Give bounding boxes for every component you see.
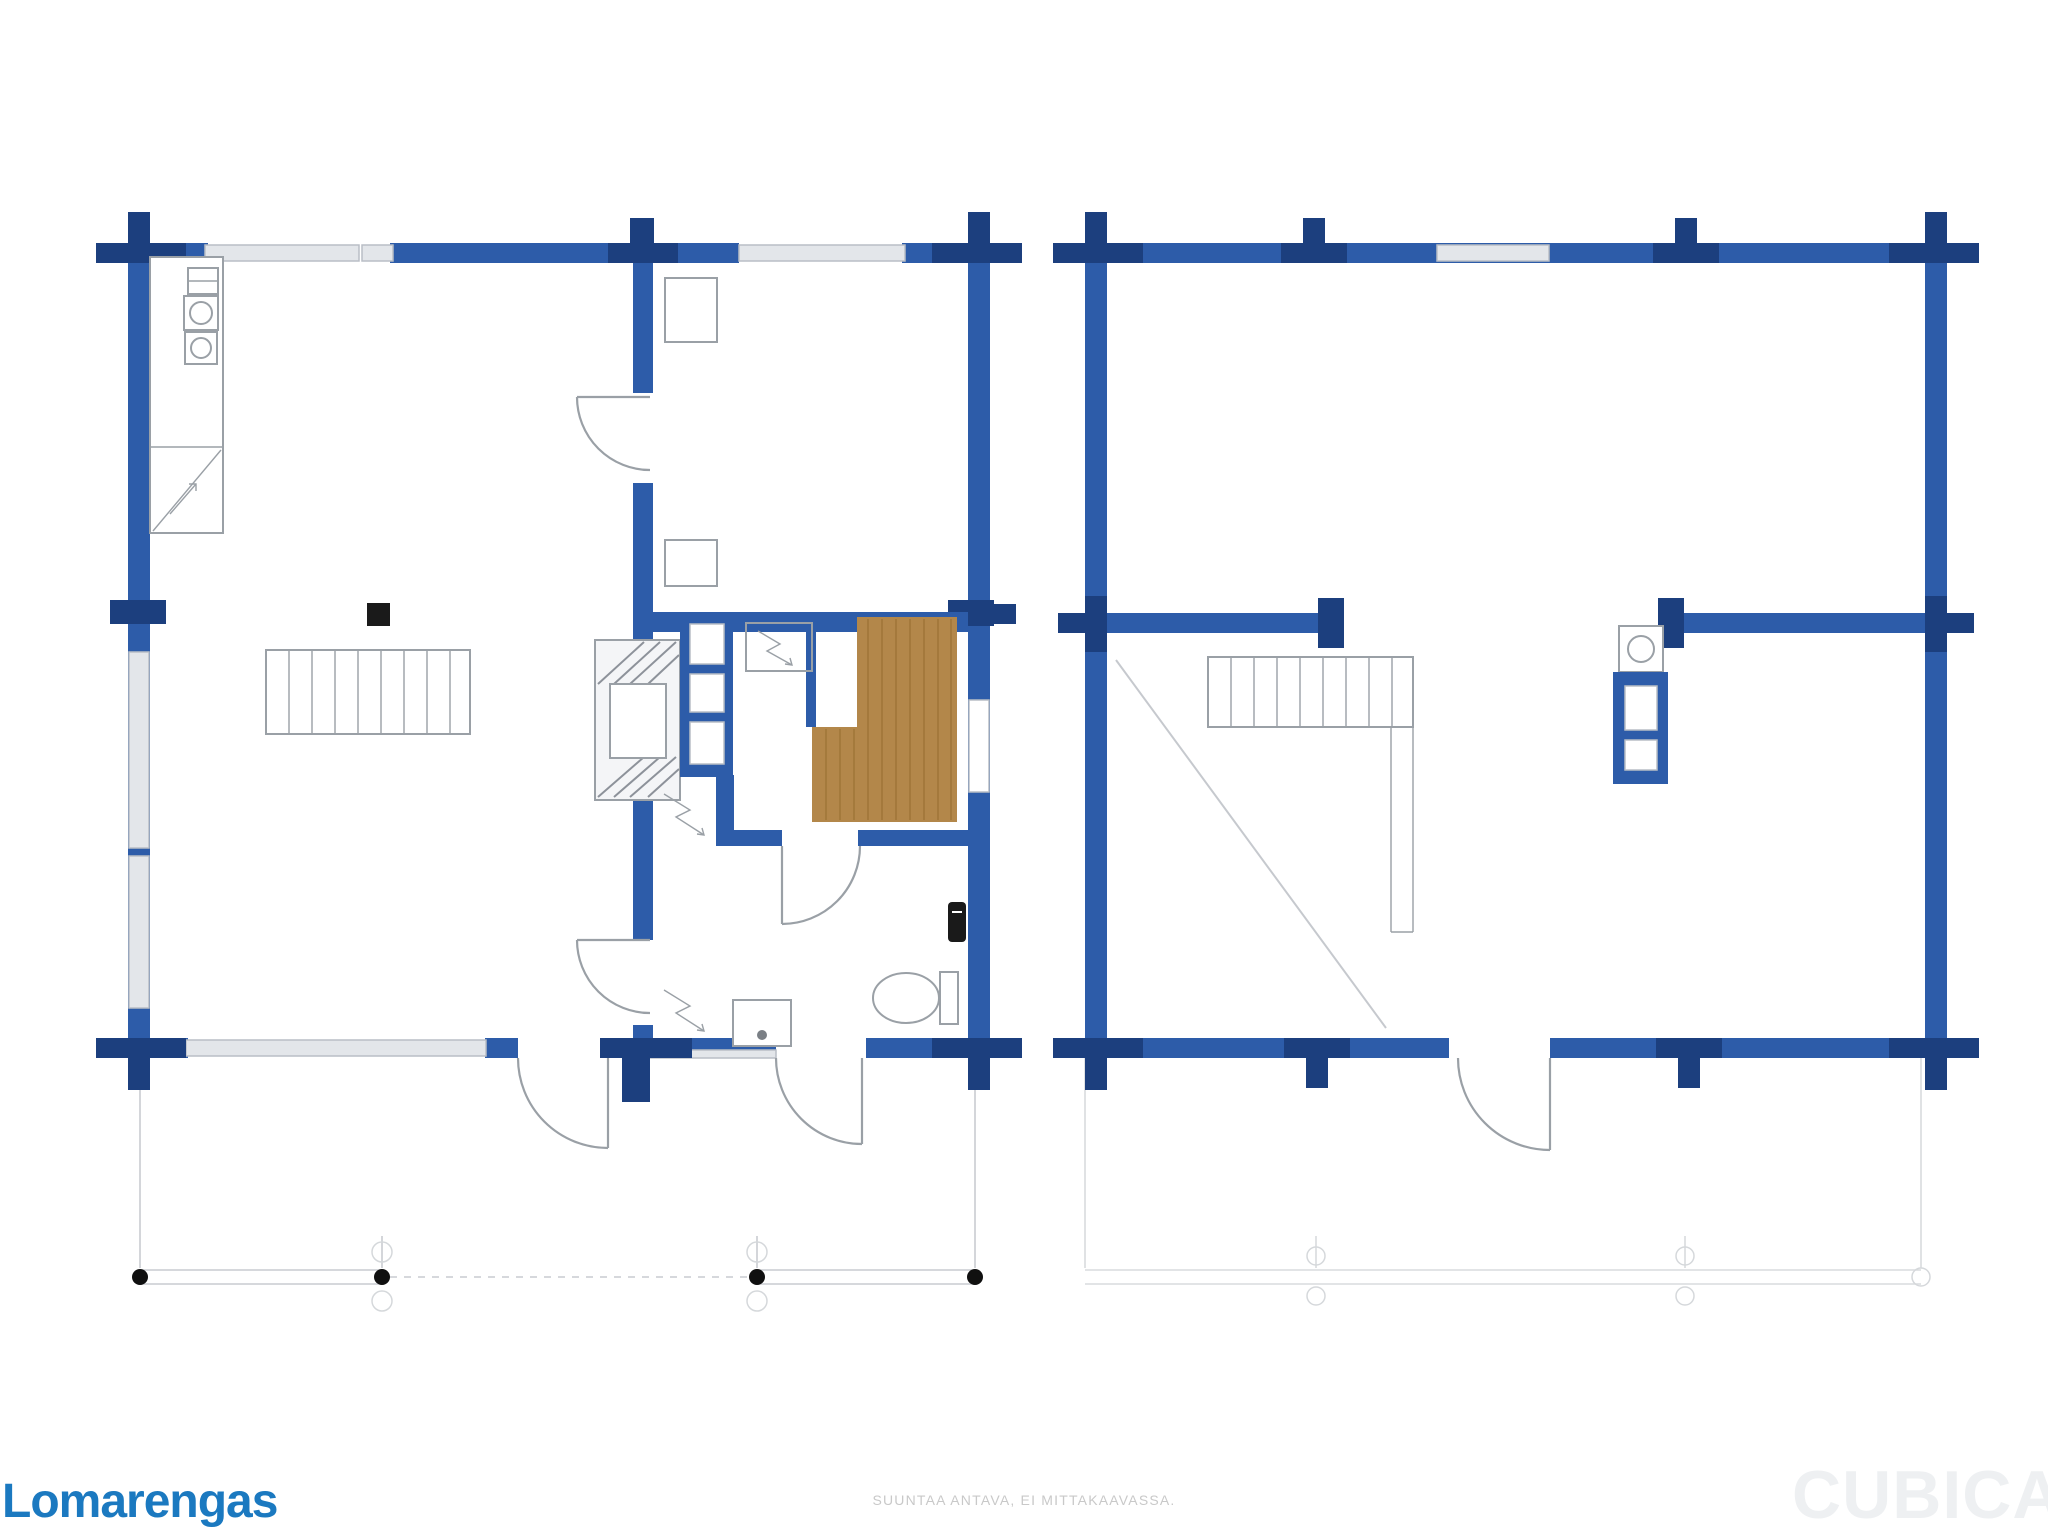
staircase-floor2: [1208, 657, 1413, 932]
washing-machine-icon: [733, 1000, 791, 1046]
terrace-post: [132, 1269, 148, 1285]
lomarengas-logo: Lomarengas: [2, 1474, 277, 1529]
terrace-post: [374, 1269, 390, 1285]
log-joints: [1053, 212, 1979, 1090]
floor2-plan: [1053, 212, 1979, 1305]
door-entrance-1: [518, 1058, 608, 1148]
floor2-terrace: [1085, 1058, 1930, 1305]
floor2-outer-walls: [1053, 212, 1979, 1090]
floor-drain-icon: [664, 990, 704, 1031]
heater-column: [680, 615, 733, 777]
window: [1437, 245, 1549, 261]
floorplan-canvas: [0, 0, 2048, 1536]
closet: [665, 540, 717, 586]
door-hall: [577, 940, 650, 1013]
floor1-terrace: [132, 1058, 983, 1311]
sink-icon: [948, 902, 966, 942]
fireplace-icon: [595, 640, 680, 800]
floorplan-page: { "branding": { "logo_text": "Lomarengas…: [0, 0, 2048, 1536]
sauna-floor: [812, 617, 957, 822]
scale-disclaimer: SUUNTAA ANTAVA, EI MITTAKAAVASSA.: [872, 1492, 1175, 1508]
terrace-post: [967, 1269, 983, 1285]
bathroom-fixtures: [664, 902, 966, 1046]
flue-marker: [367, 603, 390, 626]
closet: [665, 278, 717, 342]
chimney-icon: [1613, 626, 1668, 784]
terrace-post: [749, 1269, 765, 1285]
kitchen-counter: [150, 257, 223, 533]
door-bedroom: [577, 397, 650, 470]
staircase-floor1: [266, 650, 470, 734]
door-floor2: [1458, 1058, 1550, 1150]
floor2-interior-walls: [1107, 598, 1925, 648]
toilet-icon: [873, 972, 958, 1024]
cubicasa-watermark: CUBICASA: [1792, 1456, 2048, 1534]
floor1-plan: [96, 212, 1022, 1311]
door-entrance-2: [776, 1058, 862, 1144]
door-bathroom: [782, 846, 860, 924]
